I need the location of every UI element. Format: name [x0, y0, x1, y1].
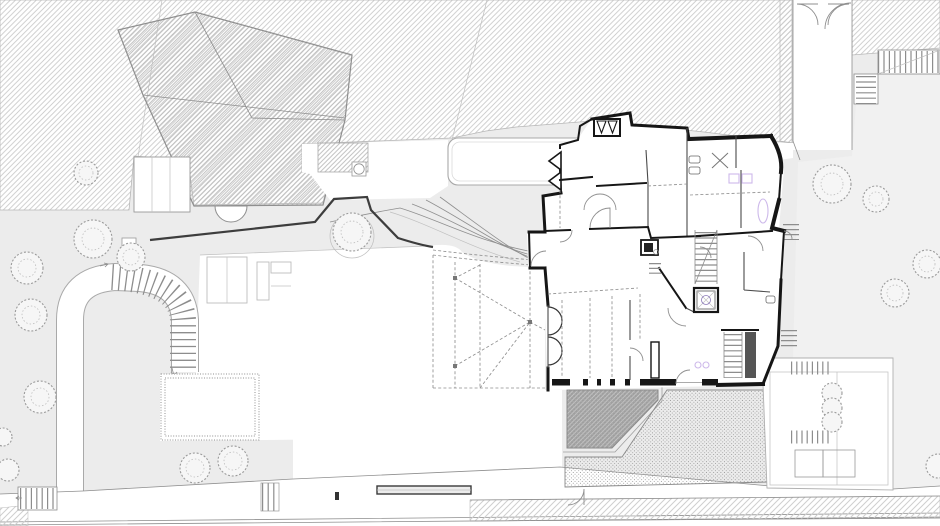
- tree: [813, 165, 851, 203]
- lift-shaft: [694, 288, 718, 312]
- gate-post: [335, 492, 339, 500]
- site-plan-drawing: [0, 0, 940, 526]
- tree: [881, 279, 909, 307]
- tree: [180, 453, 210, 483]
- street-stair-left: [16, 487, 57, 510]
- north-entry-bays: [594, 119, 620, 136]
- toilet: [689, 156, 700, 163]
- tree: [11, 252, 43, 284]
- tree: [74, 161, 98, 185]
- se-ramp-dark: [745, 332, 756, 378]
- tree: [863, 186, 889, 212]
- tree: [913, 250, 940, 278]
- lawn-dotted-border: [161, 374, 259, 440]
- tree: [74, 220, 112, 258]
- shrub: [822, 412, 842, 432]
- tree: [117, 243, 145, 271]
- tree: [218, 446, 248, 476]
- pergola-post: [453, 276, 457, 280]
- street-bench: [377, 486, 471, 494]
- pergola-post: [453, 364, 457, 368]
- chimney: [651, 342, 659, 378]
- neighbor-strip: [780, 0, 793, 143]
- pergola-post: [528, 320, 532, 324]
- kitchen-island: [641, 240, 658, 255]
- tree: [15, 299, 47, 331]
- side-passage: [793, 0, 852, 160]
- toilet: [689, 167, 700, 174]
- main-house: [527, 112, 792, 390]
- toilet: [766, 296, 775, 303]
- tree: [24, 381, 56, 413]
- floor-plan-canvas: [0, 0, 940, 526]
- building-cutout-west: [134, 157, 190, 212]
- neighbor-mass-northeast: [852, 0, 940, 55]
- south-window-band: [552, 379, 718, 387]
- tree: [333, 213, 371, 251]
